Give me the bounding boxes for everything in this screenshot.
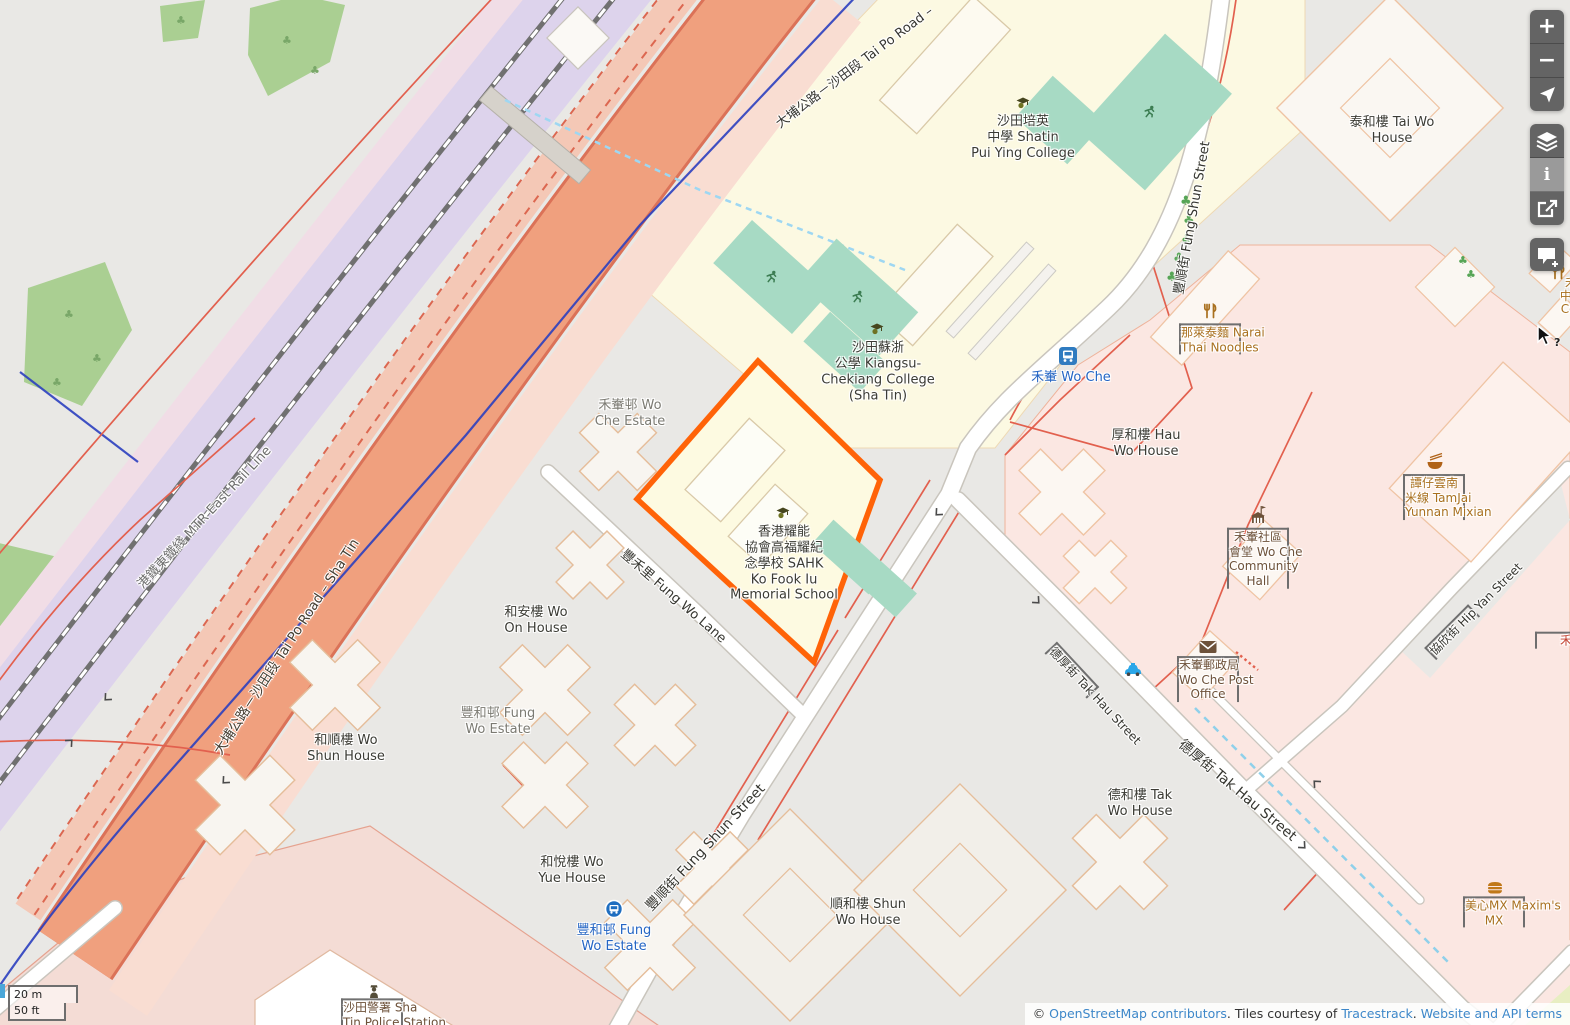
svg-text:♣: ♣ xyxy=(1458,254,1468,267)
label-line: Community xyxy=(1229,559,1287,574)
label-line: Hall xyxy=(1229,574,1287,589)
label-line: 協會高福耀紀 xyxy=(730,540,838,556)
note-control-group xyxy=(1530,238,1564,271)
label-line: 米線 TamJai xyxy=(1405,491,1463,506)
fast-food-icon xyxy=(1488,882,1502,894)
label-maxims-mx: 美心MX Maxim's MX xyxy=(1463,896,1525,927)
label-shun-wo-house: 順和樓 Shun Wo House xyxy=(830,897,906,929)
label-sahk-ko-fook-iu-memorial-school: 香港耀能 協會高福耀紀 念學校 SAHK Ko Fook Iu Memorial… xyxy=(730,524,838,603)
map-viewport[interactable]: ♣♣♣ ♣♣♣ ♣♣ xyxy=(0,0,1570,1025)
tools-control-group: i xyxy=(1530,124,1564,225)
label-line: Thai Noodles xyxy=(1181,340,1239,355)
label-line: Wo House xyxy=(1111,444,1180,460)
scale-control: 20 m 50 ft xyxy=(8,985,78,1021)
label-hau-wo-house: 厚和樓 Hau Wo House xyxy=(1111,428,1180,460)
label-line: (Sha Tin) xyxy=(821,388,935,404)
bus-stop-icon xyxy=(606,901,623,918)
label-wo-yue-house: 和悅樓 Wo Yue House xyxy=(538,855,606,887)
label-line: Memorial School xyxy=(730,588,838,604)
svg-text:♣: ♣ xyxy=(52,376,62,389)
label-line: Stal xyxy=(1560,316,1570,329)
label-fung-wo-estate: 豐和邨 Fung Wo Estate xyxy=(461,706,536,738)
label-wo-che-post-office: 禾輋郵政局 Wo Che Post Office xyxy=(1177,656,1239,702)
minus-icon: − xyxy=(1538,50,1556,72)
svg-text:♣: ♣ xyxy=(1466,268,1476,281)
label-line: 順和樓 Shun xyxy=(830,897,906,913)
svg-text:♣: ♣ xyxy=(64,308,74,321)
label-wo-che-station: 禾輋 Wo Che xyxy=(1031,370,1111,386)
locate-arrow-icon xyxy=(1531,79,1563,111)
label-line: 禾輋郵政局 xyxy=(1179,658,1237,673)
label-line: Yunnan Mixian xyxy=(1405,505,1463,520)
label-line: On House xyxy=(504,621,567,637)
label-line: Yue House xyxy=(538,871,606,887)
label-line: Tin Police Station xyxy=(343,1015,401,1025)
label-line: Wo Che Post xyxy=(1179,673,1237,688)
label-line: 那萊泰麵 Narai xyxy=(1181,325,1239,340)
label-line: 公學 Kiangsu- xyxy=(821,356,935,372)
label-line: House xyxy=(1350,131,1435,147)
locate-button[interactable] xyxy=(1530,78,1564,111)
layers-button[interactable] xyxy=(1530,124,1564,158)
label-line: 沙田蘇浙 xyxy=(821,340,935,356)
label-tak-wo-house: 德和樓 Tak Wo House xyxy=(1108,788,1173,820)
label-line: MX xyxy=(1465,913,1523,928)
scale-imperial: 50 ft xyxy=(8,1003,66,1021)
svg-text:♣: ♣ xyxy=(176,14,186,27)
label-line: 豐和邨 Fung xyxy=(577,923,652,939)
share-icon xyxy=(1531,193,1563,225)
info-icon: i xyxy=(1544,165,1550,185)
label-line: Cooked xyxy=(1560,303,1570,316)
scale-metric: 20 m xyxy=(8,985,78,1003)
terms-link[interactable]: Website and API terms xyxy=(1421,1006,1562,1021)
label-line: 和悅樓 Wo xyxy=(538,855,606,871)
water-edge-fragment xyxy=(0,984,5,998)
attribution-text: . Tiles courtesy of xyxy=(1227,1006,1341,1021)
label-fung-wo-estate-stop: 豐和邨 Fung Wo Estate xyxy=(577,923,652,955)
label-line: Shun House xyxy=(307,749,385,765)
label-line: Che Estate xyxy=(595,414,666,430)
label-line: Wo Estate xyxy=(461,722,536,738)
add-note-button[interactable] xyxy=(1530,238,1564,271)
label-line: Pui Ying College xyxy=(971,146,1075,162)
label-wo-che-community-hall: 禾輋社區 會堂 Wo Che Community Hall xyxy=(1227,528,1289,589)
label-line: Wo House xyxy=(830,913,906,929)
label-line: 和順樓 Wo xyxy=(307,733,385,749)
layers-icon xyxy=(1531,125,1563,157)
label-line: Wo House xyxy=(1108,804,1173,820)
copyright-text: © xyxy=(1033,1006,1049,1021)
label-wo-on-house: 和安樓 Wo On House xyxy=(504,605,567,637)
attribution-bar: © OpenStreetMap contributors. Tiles cour… xyxy=(1025,1003,1570,1025)
label-line: Chekiang College xyxy=(821,372,935,388)
label-narai-thai-noodles: 那萊泰麵 Narai Thai Noodles xyxy=(1179,323,1241,354)
add-note-icon xyxy=(1531,239,1563,271)
label-edge-partial: 禾 xyxy=(1535,632,1570,649)
label-line: 豐和邨 Fung xyxy=(461,706,536,722)
label-line: Wo Estate xyxy=(577,939,652,955)
map-controls: + − i xyxy=(1530,10,1564,284)
cursor-help-mark: ? xyxy=(1554,336,1560,349)
label-line: 沙田培英 xyxy=(971,114,1075,130)
label-line: 德和樓 Tak xyxy=(1108,788,1173,804)
zoom-control-group: + − xyxy=(1530,10,1564,111)
label-line: 禾輋邨 Wo xyxy=(595,398,666,414)
svg-text:♣: ♣ xyxy=(310,64,320,77)
label-line: 香港耀能 xyxy=(730,524,838,540)
share-button[interactable] xyxy=(1530,192,1564,225)
plus-icon: + xyxy=(1538,16,1556,38)
osm-contributors-link[interactable]: OpenStreetMap contributors xyxy=(1049,1006,1227,1021)
label-line: 美心MX Maxim's xyxy=(1465,898,1523,913)
label-pui-ying-college: 沙田培英 中學 Shatin Pui Ying College xyxy=(971,114,1075,162)
info-button[interactable]: i xyxy=(1530,158,1564,192)
label-wo-che-estate: 禾輋邨 Wo Che Estate xyxy=(595,398,666,430)
label-line: 會堂 Wo Che xyxy=(1229,544,1287,559)
label-line: 禾輋社區 xyxy=(1229,530,1287,545)
post-office-icon xyxy=(1200,641,1217,653)
label-wo-che-cooked-food-stall: 禾輋熟 中心 Wo Cooked Stal xyxy=(1560,277,1570,329)
label-tai-wo-house: 泰和樓 Tai Wo House xyxy=(1350,115,1435,147)
svg-text:♣: ♣ xyxy=(282,34,292,47)
label-line: Ko Fook Iu xyxy=(730,572,838,588)
tracestrack-link[interactable]: Tracestrack xyxy=(1341,1006,1412,1021)
label-line: 譚仔雲南 xyxy=(1405,476,1463,491)
zoom-in-button[interactable]: + xyxy=(1530,10,1564,44)
attribution-text: . xyxy=(1413,1006,1421,1021)
svg-text:♣: ♣ xyxy=(92,352,102,365)
label-line: 念學校 SAHK xyxy=(730,556,838,572)
label-kiangsu-chekiang-college: 沙田蘇浙 公學 Kiangsu- Chekiang College (Sha T… xyxy=(821,340,935,403)
label-tamjai-yunnan-mixian: 譚仔雲南 米線 TamJai Yunnan Mixian xyxy=(1403,474,1465,520)
label-line: Office xyxy=(1179,687,1237,702)
label-line: 中學 Shatin xyxy=(971,130,1075,146)
label-line: 泰和樓 Tai Wo xyxy=(1350,115,1435,131)
label-wo-shun-house: 和順樓 Wo Shun House xyxy=(307,733,385,765)
map-canvas[interactable]: ♣♣♣ ♣♣♣ ♣♣ xyxy=(0,0,1570,1025)
label-line: 中心 Wo xyxy=(1560,290,1570,303)
label-line: 厚和樓 Hau xyxy=(1111,428,1180,444)
label-line: 和安樓 Wo xyxy=(504,605,567,621)
label-sha-tin-police-station: 沙田警署 Sha Tin Police Station xyxy=(341,998,403,1025)
station-icon xyxy=(1059,347,1077,365)
zoom-out-button[interactable]: − xyxy=(1530,44,1564,78)
label-line: 沙田警署 Sha xyxy=(343,1000,401,1015)
